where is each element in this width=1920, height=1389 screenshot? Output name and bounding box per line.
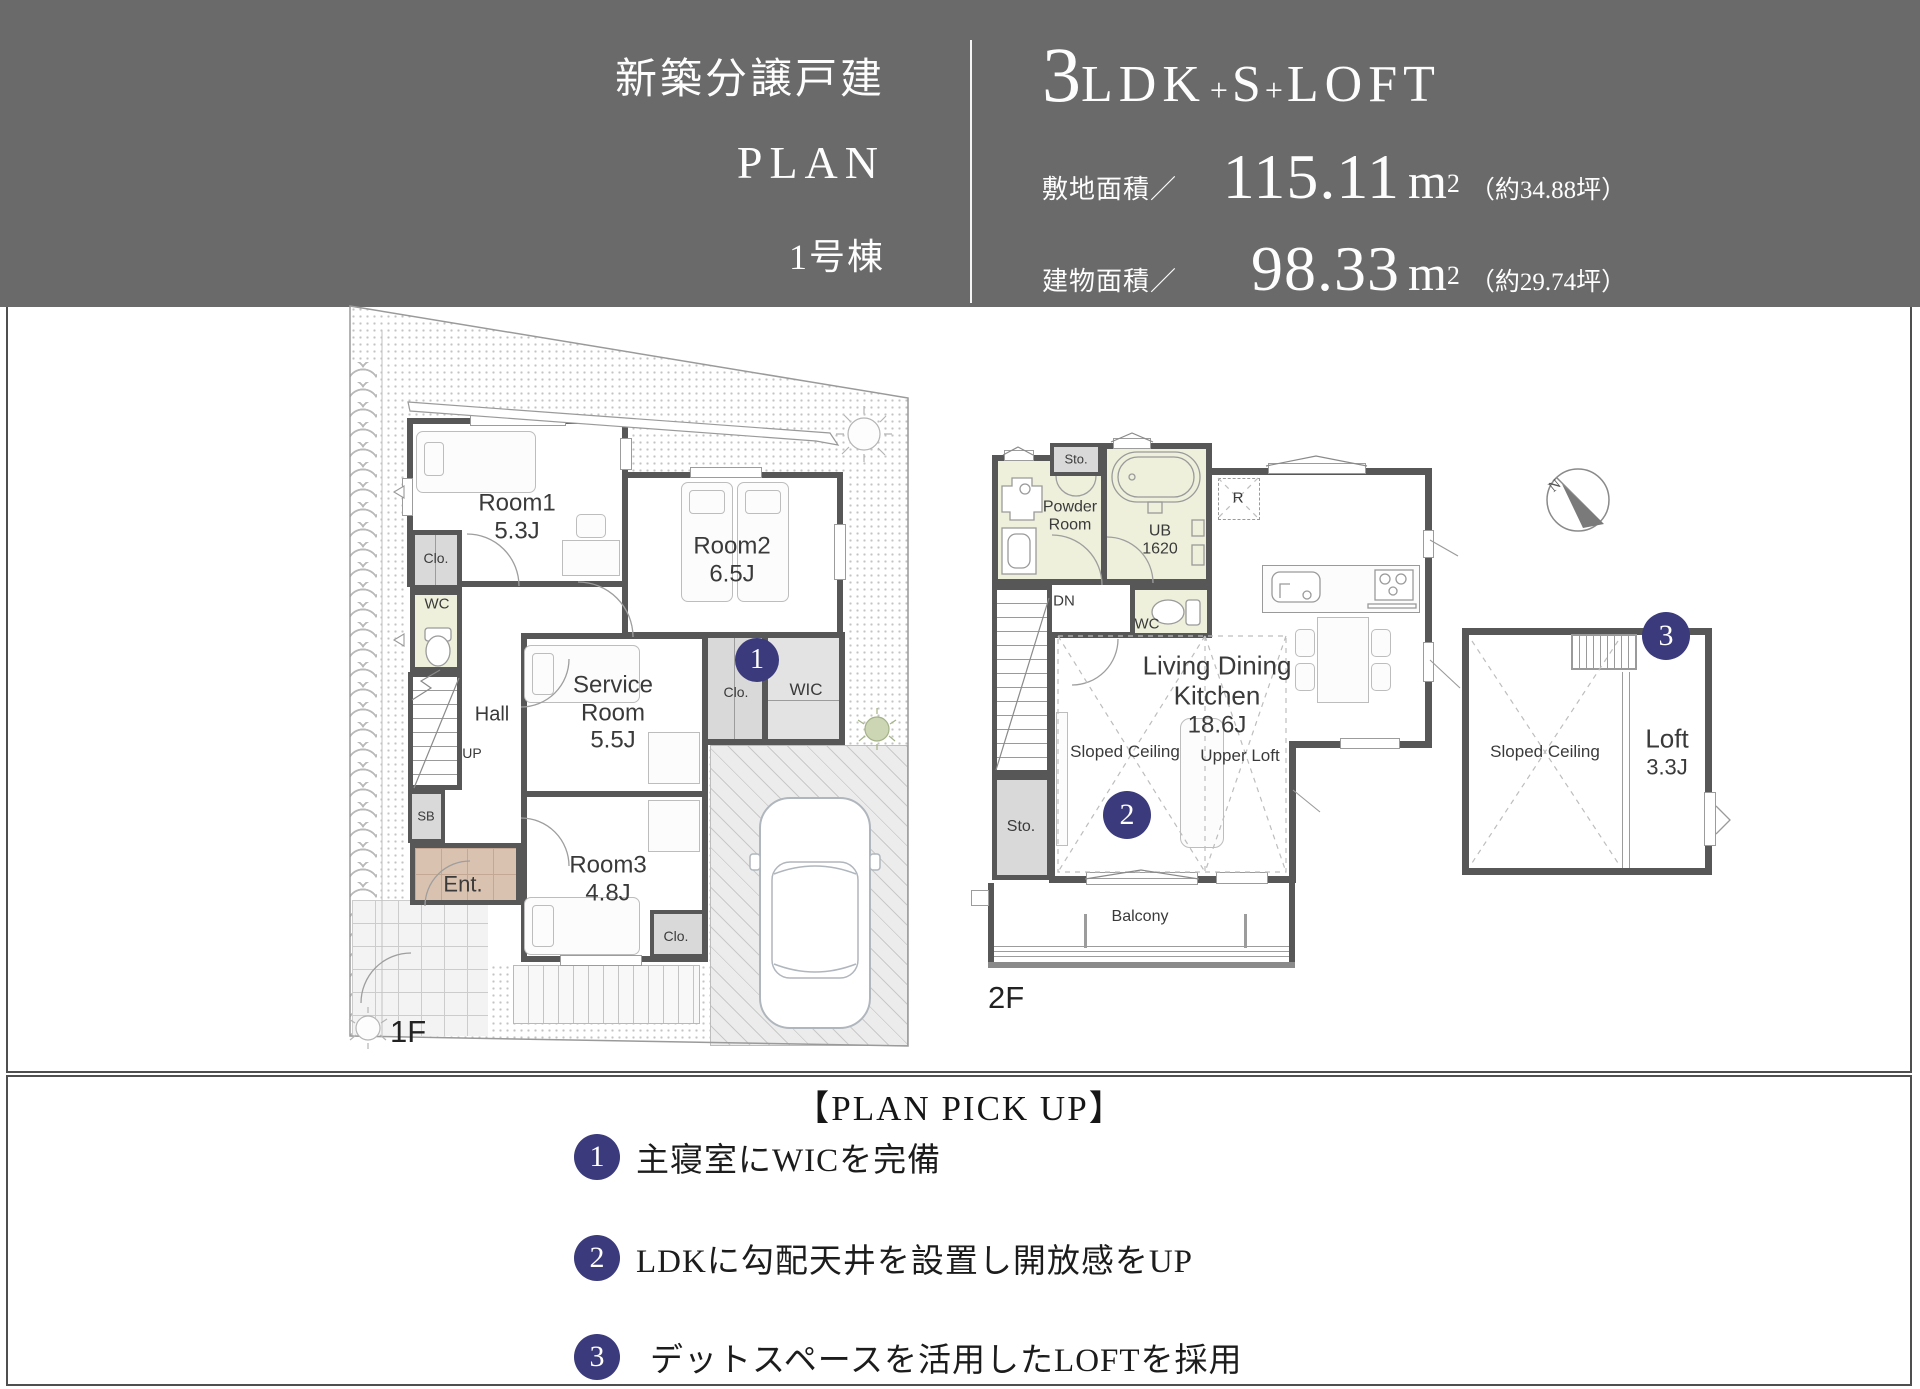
closet-label: Clo.	[664, 928, 689, 944]
feature-badge-1: 1	[735, 638, 779, 682]
window	[834, 524, 846, 580]
entrance-label: Ent.	[443, 871, 482, 896]
room2-label: Room26.5J	[693, 532, 770, 587]
pickup-item-2: 2 LDKに勾配天井を設置し開放感をUP	[574, 1235, 1193, 1281]
f2-bathroom	[1101, 443, 1212, 585]
balcony-label: Balcony	[1112, 908, 1169, 926]
loft-divider	[1622, 672, 1623, 868]
tv-board	[1056, 712, 1068, 846]
layout-plus2: +	[1265, 72, 1283, 109]
f1-stairs	[408, 672, 462, 790]
wic-hanger-line	[768, 700, 839, 701]
wc-label: WC	[1135, 615, 1160, 632]
balcony-side-box	[971, 890, 989, 906]
layout-line: 3LDK+S+LOFT	[1042, 30, 1441, 120]
building-area-unit-sup: 2	[1447, 261, 1460, 291]
balcony-wall-right	[1289, 883, 1295, 968]
site-area-tsubo: （約34.88坪）	[1470, 170, 1626, 206]
loft-divider	[1629, 672, 1630, 868]
storage-label: Sto.	[1007, 818, 1035, 836]
storage-label: Sto.	[1064, 453, 1087, 468]
project-type-label: 新築分譲戸建	[440, 45, 885, 106]
layout-ldk: LDK	[1081, 55, 1206, 114]
sloped-ceiling-label: Sloped Ceiling	[1070, 742, 1180, 762]
room1-label: Room15.3J	[478, 489, 555, 544]
building-area-label: 建物面積／	[1042, 261, 1204, 298]
pickup-badge-3: 3	[574, 1334, 620, 1380]
building-area-unit: m	[1408, 244, 1447, 302]
service-room-label: ServiceRoom5.5J	[573, 672, 653, 755]
window	[1423, 530, 1434, 558]
layout-plus1: +	[1210, 72, 1228, 109]
layout-loft: LOFT	[1287, 55, 1441, 114]
flyer-page: 新築分譲戸建 PLAN 1号棟 3LDK+S+LOFT 敷地面積／ 115.11…	[0, 0, 1920, 1389]
desk	[648, 800, 700, 852]
window	[1423, 642, 1434, 682]
desk	[562, 540, 620, 576]
balcony-post	[1244, 914, 1247, 948]
pickup-text-3: デットスペースを活用したLOFTを採用	[650, 1333, 1243, 1381]
building-area-row: 建物面積／ 98.33 m2 （約29.74坪）	[1042, 232, 1626, 306]
window	[1268, 463, 1366, 474]
header-divider	[970, 40, 972, 303]
pillow	[689, 490, 725, 514]
window	[620, 438, 632, 470]
closet-label: Clo.	[724, 684, 749, 700]
dn-label: DN	[1053, 592, 1075, 609]
pickup-text-2: LDKに勾配天井を設置し開放感をUP	[636, 1234, 1193, 1282]
building-area-tsubo: （約29.74坪）	[1470, 262, 1626, 298]
desk	[648, 732, 700, 784]
window	[470, 414, 566, 426]
loft-opening	[1704, 792, 1716, 846]
balcony-post	[1084, 914, 1087, 948]
pillow	[424, 442, 444, 476]
pickup-badge-2: 2	[574, 1235, 620, 1281]
kitchen-counter	[1262, 565, 1420, 613]
bathroom-label: UB1620	[1142, 523, 1178, 560]
layout-number: 3	[1042, 30, 1081, 120]
sloped-ceiling-label: Sloped Ceiling	[1490, 742, 1600, 762]
pickup-item-1: 1 主寝室にWICを完備	[574, 1134, 941, 1180]
pickup-title: 【PLAN PICK UP】	[0, 1080, 1920, 1131]
site-area-row: 敷地面積／ 115.11 m2 （約34.88坪）	[1042, 140, 1626, 214]
window	[402, 478, 413, 516]
feature-badge-2: 2	[1103, 791, 1151, 839]
chair	[576, 514, 606, 538]
building-area-value: 98.33	[1204, 232, 1400, 306]
ldk-label: Living DiningKitchen18.6J	[1143, 651, 1292, 738]
window	[1113, 438, 1151, 449]
balcony-door	[1086, 872, 1198, 885]
window	[1216, 872, 1268, 884]
sb-label: SB	[417, 810, 434, 825]
header-band: 新築分譲戸建 PLAN 1号棟 3LDK+S+LOFT 敷地面積／ 115.11…	[0, 0, 1920, 307]
f2-wall-main-left	[1049, 638, 1055, 883]
f2-stairs	[992, 585, 1052, 775]
pickup-item-3: 3 デットスペースを活用したLOFTを採用	[574, 1334, 1243, 1380]
wc-label: WC	[425, 595, 450, 612]
chair	[1295, 629, 1315, 657]
f2-wall-main-right	[1289, 741, 1296, 883]
balcony-rail	[994, 956, 1289, 957]
upper-loft-label: Upper Loft	[1200, 746, 1279, 766]
dining-table	[1317, 617, 1369, 703]
fridge-label: R	[1233, 489, 1244, 506]
closet-label: Clo.	[424, 550, 449, 566]
plan-word-label: PLAN	[440, 136, 885, 189]
layout-s: S	[1232, 55, 1261, 114]
hall-label: Hall	[475, 704, 509, 727]
site-area-label: 敷地面積／	[1042, 169, 1204, 206]
balcony-rail	[994, 951, 1289, 952]
building-number-label: 1号棟	[440, 228, 885, 280]
feature-badge-3: 3	[1642, 612, 1690, 660]
wood-deck	[513, 965, 700, 1024]
chair	[1295, 663, 1315, 691]
window	[1340, 738, 1400, 749]
window	[1004, 450, 1034, 461]
pickup-badge-1: 1	[574, 1134, 620, 1180]
pillow	[532, 653, 554, 695]
floor2-label: 2F	[988, 980, 1024, 1016]
loft-label: Loft3.3J	[1645, 724, 1688, 779]
pillow	[532, 905, 554, 947]
floor1-label: 1F	[390, 1014, 426, 1050]
window	[560, 955, 642, 966]
pickup-text-1: 主寝室にWICを完備	[636, 1133, 941, 1181]
chair	[1371, 629, 1391, 657]
balcony-wall-bottom	[988, 962, 1295, 968]
wic-label: WIC	[789, 680, 822, 700]
chair	[1371, 663, 1391, 691]
up-label: UP	[462, 745, 481, 761]
site-area-unit: m	[1408, 152, 1447, 210]
f2-wall-hall-bottom	[1052, 632, 1130, 638]
site-area-value: 115.11	[1204, 140, 1400, 214]
pillow	[745, 490, 781, 514]
loft-ladder	[1571, 634, 1637, 670]
powder-room-label: PowderRoom	[1043, 499, 1097, 536]
parking-space	[710, 745, 908, 1046]
room3-label: Room34.8J	[569, 851, 646, 906]
site-area-unit-sup: 2	[1447, 169, 1460, 199]
f2-wall-wing-right	[1425, 468, 1432, 748]
window	[690, 467, 762, 478]
